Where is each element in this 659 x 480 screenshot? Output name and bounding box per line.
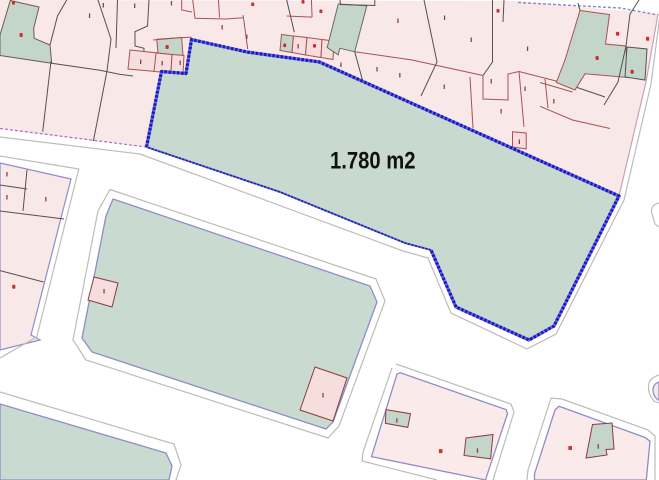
svg-text:1.780 m2: 1.780 m2 <box>330 147 416 174</box>
